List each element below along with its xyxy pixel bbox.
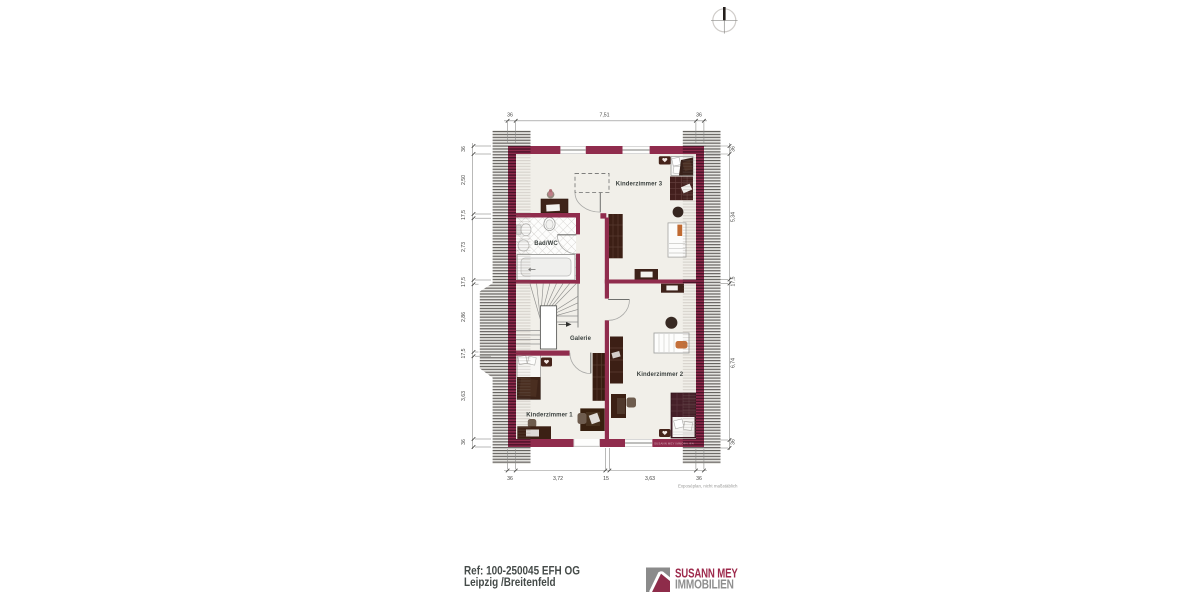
svg-text:36: 36 [507, 476, 513, 482]
svg-text:Kinderzimmer 3: Kinderzimmer 3 [616, 181, 663, 187]
svg-text:15: 15 [603, 476, 609, 482]
svg-text:3,72: 3,72 [553, 476, 563, 482]
svg-text:Kinderzimmer 1: Kinderzimmer 1 [526, 413, 573, 419]
svg-text:17,5: 17,5 [461, 277, 467, 287]
svg-text:36: 36 [507, 112, 513, 118]
svg-text:5,34: 5,34 [731, 212, 737, 222]
svg-text:Exposéplan, nicht maßstäblich: Exposéplan, nicht maßstäblich [678, 484, 738, 489]
svg-text:36: 36 [461, 439, 467, 445]
svg-text:Leipzig /Breitenfeld: Leipzig /Breitenfeld [464, 576, 556, 589]
svg-text:36: 36 [461, 146, 467, 152]
svg-text:36: 36 [731, 439, 737, 445]
svg-text:6,74: 6,74 [731, 358, 737, 368]
svg-text:36: 36 [696, 112, 702, 118]
svg-text:17,5: 17,5 [731, 276, 737, 286]
svg-text:Bad/WC: Bad/WC [534, 241, 558, 247]
svg-text:2,50: 2,50 [461, 175, 467, 185]
svg-text:17,5: 17,5 [461, 348, 467, 358]
svg-text:36: 36 [696, 476, 702, 482]
svg-text:3,63: 3,63 [461, 391, 467, 401]
svg-text:36: 36 [731, 146, 737, 152]
svg-text:2,86: 2,86 [461, 312, 467, 322]
svg-text:IMMOBILIEN: IMMOBILIEN [675, 578, 734, 591]
svg-text:Kinderzimmer 2: Kinderzimmer 2 [637, 372, 684, 378]
svg-text:2,73: 2,73 [461, 242, 467, 252]
svg-text:17,5: 17,5 [461, 210, 467, 220]
svg-text:7,51: 7,51 [599, 112, 609, 118]
svg-text:3,63: 3,63 [645, 476, 655, 482]
svg-text:Galerie: Galerie [570, 336, 592, 342]
